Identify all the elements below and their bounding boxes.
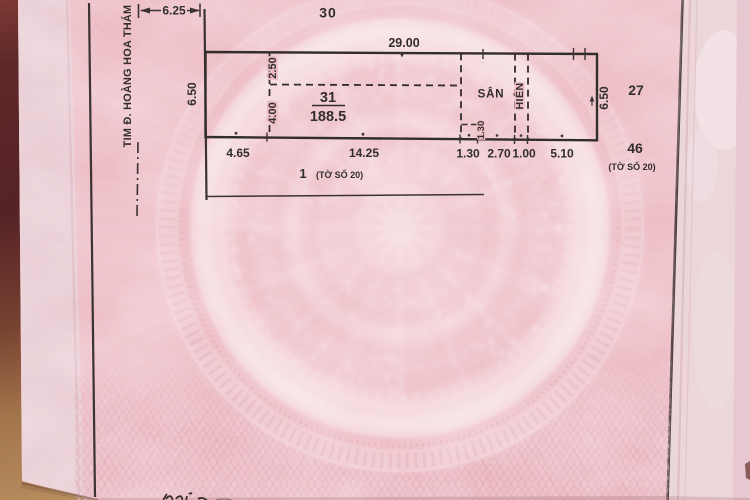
svg-text:188.5: 188.5: [310, 109, 346, 125]
svg-text:2.50: 2.50: [267, 57, 279, 78]
svg-text:1.30: 1.30: [476, 121, 487, 140]
svg-text:(TỜ SỐ 20): (TỜ SỐ 20): [316, 169, 363, 180]
svg-text:4.65: 4.65: [226, 146, 250, 160]
svg-text:31: 31: [320, 90, 336, 106]
svg-text:6.25: 6.25: [162, 4, 186, 18]
svg-text:30: 30: [319, 5, 337, 21]
svg-text:6.50: 6.50: [185, 82, 199, 106]
svg-text:1.00: 1.00: [512, 147, 536, 161]
svg-text:6.50: 6.50: [597, 86, 611, 110]
svg-text:29.00: 29.00: [388, 36, 419, 50]
svg-text:2.70: 2.70: [487, 147, 511, 161]
svg-text:5.10: 5.10: [550, 147, 574, 161]
svg-text:27: 27: [628, 82, 644, 98]
svg-text:(TỜ SỐ 20): (TỜ SỐ 20): [608, 161, 655, 172]
svg-text:HIÊN: HIÊN: [513, 82, 526, 109]
svg-text:SÂN: SÂN: [478, 88, 505, 101]
svg-text:TIM Đ. HOÀNG HOA THÁM: TIM Đ. HOÀNG HOA THÁM: [121, 5, 134, 148]
svg-text:4.00: 4.00: [267, 102, 279, 123]
svg-text:46: 46: [627, 140, 643, 156]
svg-text:1: 1: [299, 166, 306, 181]
svg-text:14.25: 14.25: [349, 146, 379, 160]
svg-text:1.30: 1.30: [456, 147, 480, 161]
